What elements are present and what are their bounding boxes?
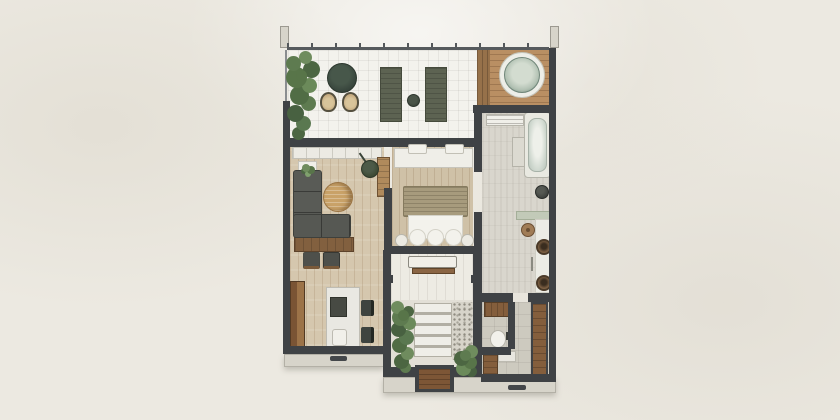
wall-garden-bottom-l (383, 367, 417, 377)
shelf-plant (302, 164, 310, 172)
wall-bath-top (473, 105, 556, 113)
side-chair-2 (361, 327, 374, 343)
toilet (490, 330, 506, 348)
wall-stub-top-right (550, 26, 559, 48)
wall-wc-divider (508, 302, 515, 349)
wall-patio-right (473, 254, 482, 377)
wall-living-bedroom (384, 188, 392, 254)
garden-plant-right (460, 350, 471, 361)
wicker-chair-2 (342, 92, 359, 112)
garden-plant-left (398, 310, 409, 321)
wicker-chair-1 (320, 92, 337, 112)
bathtub-basin (528, 118, 547, 172)
duvet-scallop-3 (445, 229, 462, 246)
towel-rail (531, 257, 533, 271)
wall-bottom-left (283, 346, 384, 354)
sun-lounger-2 (425, 67, 447, 122)
sofa-wood-base (294, 237, 354, 252)
pillow-right (445, 144, 464, 154)
round-daybed (327, 63, 357, 93)
corridor-wardrobe (531, 302, 548, 376)
desk-chair (332, 329, 347, 346)
tub-side-table (512, 137, 525, 167)
door-handle-bottom (508, 385, 526, 390)
stepping-slabs (414, 303, 452, 357)
wall-vanity-wc-r (528, 293, 556, 302)
pouf-1 (303, 252, 320, 269)
wall-right (549, 48, 556, 382)
laptop (330, 297, 347, 317)
bath-dark-stool (535, 185, 549, 199)
patio-bench-wood (412, 268, 455, 274)
wc-cabinet-low (483, 354, 498, 375)
coffee-table (323, 182, 353, 212)
patio-bench-cushion (408, 256, 457, 268)
terrace-tree (296, 70, 307, 81)
sun-lounger-1 (380, 67, 402, 122)
wall-hook-left (390, 275, 393, 283)
hot-tub-water (504, 57, 540, 93)
sofa-seat-section (293, 214, 351, 238)
wall-vanity-wc-l (481, 293, 513, 302)
side-chair-1 (361, 300, 374, 316)
duvet-scallop-2 (427, 229, 444, 246)
terrace-railing (287, 47, 549, 50)
door-handle-left (330, 356, 347, 361)
wall-bed-foot (390, 246, 474, 254)
study-wardrobe (290, 281, 305, 350)
duvet-scallop-1 (409, 229, 426, 246)
terrace-side-table (407, 94, 420, 107)
wall-wc-low (481, 347, 511, 355)
vanity-stool-dot (526, 228, 530, 232)
wall-bottom-right (481, 374, 556, 382)
wall-bed-bath-upper (474, 113, 482, 172)
living-wall-shelf (292, 147, 382, 159)
shower-bench (486, 114, 524, 126)
garden-door (419, 369, 450, 389)
pouf-2 (323, 252, 340, 269)
wall-bed-bath-lower (474, 212, 482, 254)
bed-blanket (403, 186, 468, 217)
wall-garden-bottom-r (452, 367, 482, 377)
hanging-lamp (361, 160, 379, 178)
terrace-side-rail (285, 50, 287, 102)
wall-hook-right (471, 275, 474, 283)
deck-dark-strip (477, 48, 490, 105)
wall-patio-left (383, 250, 391, 377)
floor-plan-canvas (0, 0, 840, 420)
pillow-left (408, 144, 427, 154)
wc-cabinet-top (484, 302, 510, 317)
